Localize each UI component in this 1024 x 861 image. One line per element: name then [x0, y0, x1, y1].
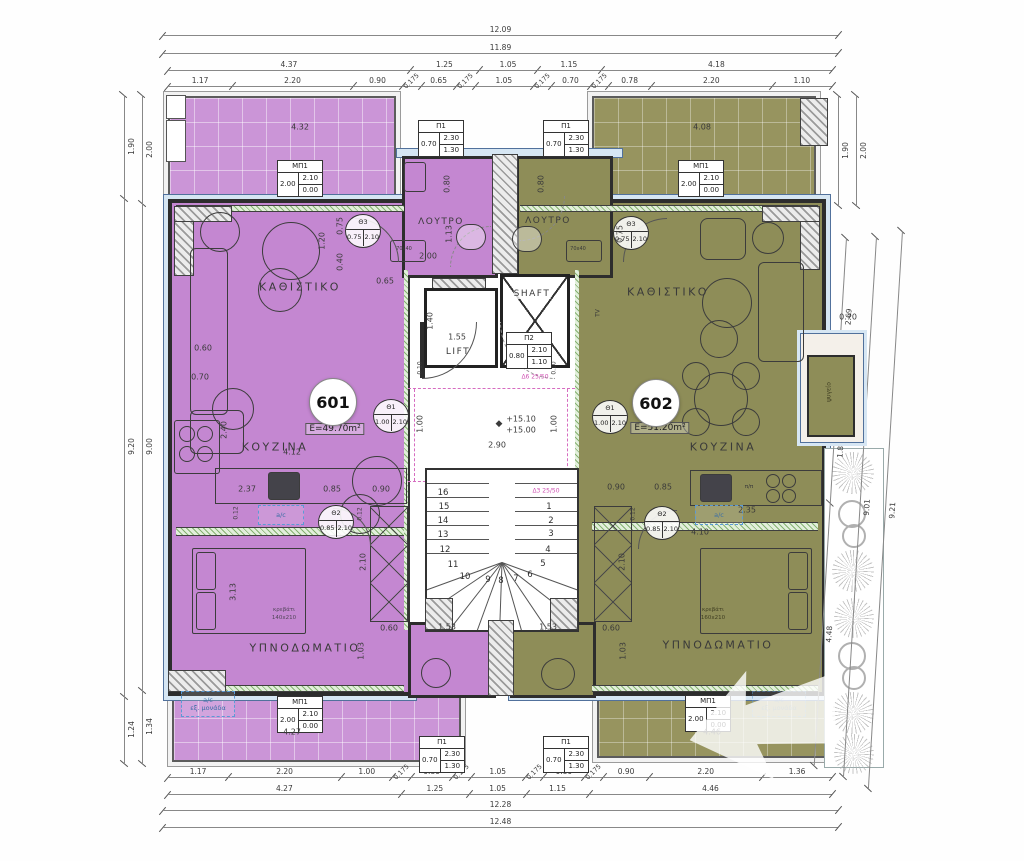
spec-width: 0.70: [544, 749, 565, 772]
plan-annotation: 0.12: [233, 506, 240, 519]
dimension-segment: 1.24: [124, 696, 138, 763]
dim-chain-top-4: 1.172.200.900.1750.650.1751.050.1750.700…: [168, 73, 832, 87]
dimension-segment: 1.17: [168, 764, 228, 778]
dim-chain-right-top-inner: 2.00: [856, 95, 870, 205]
plan-annotation: 1.03: [357, 642, 366, 660]
spec-title: ΜΠ1: [278, 697, 322, 709]
spec-width: 2.00: [278, 173, 299, 196]
dimension-segment: 9.00: [142, 203, 156, 690]
plan-annotation: 160x210: [701, 615, 725, 621]
post-top-left-2: [166, 120, 186, 162]
beam-line-1: [408, 388, 575, 389]
dimension-segment: 1.17: [168, 73, 232, 87]
toilet-602: [512, 226, 542, 252]
unit-number-602: 602: [639, 394, 672, 413]
plan-annotation: 2.40: [220, 421, 229, 439]
spec-height: 2.10: [700, 173, 723, 185]
spec-height: 2.10: [528, 345, 551, 357]
coffee-table-602-a: [702, 278, 752, 328]
kitchen-sink-602: [700, 474, 732, 502]
dimension-value: 4.37: [281, 60, 298, 69]
pillow-602-b: [788, 592, 808, 630]
plan-annotation: 1.53: [438, 623, 456, 632]
spec-sill: 1.30: [565, 761, 588, 772]
tag-title: Θ1: [593, 401, 627, 416]
bottom-room-601: [408, 622, 496, 698]
window-spec-P1-bottom-left: Π1 0.70 2.301.30: [419, 736, 465, 773]
plan-annotation: 0.60: [194, 344, 212, 353]
plan-annotation: 4.12: [283, 448, 301, 457]
dimension-segment: 2.20: [651, 73, 772, 87]
dimension-segment: 0.175: [590, 73, 609, 87]
plan-annotation: 4.32: [291, 123, 309, 132]
plan-annotation: TV: [595, 309, 602, 317]
wall-between-bathrooms: [492, 154, 518, 274]
dimension-segment: 1.15: [537, 57, 601, 71]
door-tag-TH2-601: Θ2 0.852.10: [318, 505, 354, 539]
dimension-value: 2.20: [703, 76, 720, 85]
plan-annotation: 0.10: [551, 361, 558, 374]
dimension-value: 9.01: [862, 498, 872, 515]
door-tag-TH1-602: Θ1 1.002.10: [592, 400, 628, 434]
spec-title: Π2: [507, 333, 551, 345]
plan-annotation: 4.08: [693, 123, 711, 132]
dimension-value: 1.25: [427, 784, 444, 793]
plan-annotation: 0.70: [191, 373, 209, 382]
dimension-value: 1.84: [836, 441, 846, 458]
balcony-chair-602: [541, 658, 575, 690]
dimension-segment: 2.00: [142, 95, 156, 203]
dimension-segment: 0.175: [392, 764, 411, 778]
plan-annotation: 4.10: [691, 528, 709, 537]
lift-label: LIFT: [446, 347, 470, 357]
window-spec-P1-bottom-right: Π1 0.70 2.301.30: [543, 736, 589, 773]
plan-annotation: Δ6 25/50: [521, 374, 548, 381]
dimension-value: 9.20: [127, 439, 136, 456]
plan-annotation: 140x210: [272, 615, 296, 621]
ac-ext-unit-601: a/c εξ. μονάδα: [181, 691, 235, 717]
armchair-602-sq: [700, 218, 746, 260]
stair-step-number: 3: [548, 529, 553, 539]
kitchen-sink-601: [268, 472, 300, 500]
shower-601: [404, 162, 426, 192]
level-mark-icon: ◆: [496, 419, 503, 429]
dimension-segment: 1.90: [838, 95, 852, 205]
dimension-value: 0.175: [392, 763, 411, 782]
ac-unit-602: a/c: [695, 505, 743, 525]
plan-annotation: 0.40: [336, 253, 345, 271]
level-upper: +15.10: [506, 415, 536, 424]
plan-annotation: 1.13: [445, 225, 454, 243]
stove-burner-601-3: [179, 446, 195, 462]
wall-between-bottom-rooms: [488, 620, 514, 696]
bath-label-602: ΛΟΥΤΡΟ: [525, 216, 571, 226]
stair-step-number: 11: [448, 560, 459, 570]
dimension-segment: 1.15: [526, 781, 589, 795]
dimension-segment: 2.20: [232, 73, 353, 87]
dimension-segment: 4.37: [168, 57, 410, 71]
plan-annotation: 0.12: [357, 507, 364, 520]
stove-burner-602-2: [782, 474, 796, 488]
plan-annotation: 1.03: [619, 642, 628, 660]
unit-badge-602: 602: [632, 379, 680, 427]
ac-unit-601: a/c: [258, 505, 304, 525]
beam-line-3: [414, 389, 415, 481]
dimension-value: 9.00: [145, 439, 154, 456]
stair-step-number: 9: [485, 575, 490, 585]
plan-annotation: 0.12: [630, 507, 637, 520]
plan-annotation: 1.40: [426, 312, 435, 330]
plan-annotation: 70x40: [570, 246, 586, 252]
dimension-segment: 2.00: [856, 95, 870, 205]
post-top-left-1: [166, 95, 186, 119]
living-label-602: ΚΑΘΙΣΤΙΚΟ: [627, 286, 709, 299]
dimension-segment: 1.05: [471, 764, 525, 778]
stair-step-number: 8: [498, 576, 503, 586]
plan-annotation: 0.80: [537, 175, 546, 193]
spec-sill: 1.30: [440, 145, 463, 156]
dimension-value: 0.175: [533, 72, 552, 91]
tag-title: Θ2: [645, 507, 679, 522]
stair-step-number: 16: [438, 488, 449, 498]
plan-annotation: 2.37: [238, 485, 256, 494]
plan-annotation: 2.35: [738, 506, 756, 515]
dimension-segment: 1.00: [341, 764, 392, 778]
stove-burner-601-4: [197, 446, 213, 462]
dimension-value: 1.05: [500, 60, 517, 69]
dimension-value: 0.175: [525, 763, 544, 782]
stair-step-number: 10: [460, 572, 471, 582]
dim-chain-left-outer: 1.909.201.24: [124, 95, 138, 763]
dimension-segment: 0.65: [421, 73, 457, 87]
plan-annotation: 0.90: [372, 485, 390, 494]
plan-annotation: 0.65: [376, 277, 394, 286]
stair-step-number: 6: [527, 570, 532, 580]
plan-annotation: 1.00: [416, 415, 425, 433]
plan-annotation: 0.75: [616, 225, 625, 243]
unit-number-601: 601: [316, 393, 349, 412]
dimension-value: 4.48: [824, 626, 834, 643]
door-tag-TH1-601: Θ1 1.002.10: [373, 399, 409, 433]
dimension-value: 4.27: [276, 784, 293, 793]
dining-chair-602-2: [732, 362, 760, 390]
plan-annotation: 2.00: [419, 252, 437, 261]
tag-title: Θ2: [319, 506, 353, 521]
sofa-602: [758, 262, 804, 362]
spec-width: 0.70: [419, 133, 440, 156]
spec-title: Π1: [544, 737, 588, 749]
dimension-value: 2.20: [284, 76, 301, 85]
plan-annotation: 3.13: [229, 583, 238, 601]
bedroom-label-601: ΥΠΝΟΔΩΜΑΤΙΟ: [250, 642, 361, 655]
stair-step-number: 4: [545, 545, 550, 555]
plan-annotation: 0.60: [602, 624, 620, 633]
dimension-segment: 1.34: [142, 690, 156, 763]
dimension-segment: 1.36: [762, 764, 832, 778]
dimension-value: 12.09: [490, 25, 511, 34]
stair-step-number: 15: [439, 502, 450, 512]
dimension-value: 12.28: [490, 800, 511, 809]
spec-sill: 0.00: [299, 185, 322, 196]
spec-width: 0.70: [544, 133, 565, 156]
wardrobe-601: [370, 506, 408, 622]
spec-height: 2.30: [441, 749, 464, 761]
dining-chair-602-4: [732, 408, 760, 436]
corner-wall-bottom-left: [168, 670, 226, 692]
dimension-value: 0.65: [430, 76, 447, 85]
dimension-value: 1.17: [192, 76, 209, 85]
coffee-table-602-b: [700, 320, 738, 358]
dimension-segment: 12.09: [163, 22, 838, 36]
dimension-value: 0.90: [618, 767, 635, 776]
unit-badge-601: 601: [309, 378, 357, 426]
spec-title: Π1: [544, 121, 588, 133]
spec-title: Π1: [419, 121, 463, 133]
plan-annotation: 1.55: [448, 333, 466, 342]
dimension-value: 11.89: [490, 43, 511, 52]
ac-label-602: a/c: [714, 511, 724, 519]
plan-annotation: 0.90: [607, 483, 625, 492]
dim-chain-bottom-3: 12.28: [163, 797, 838, 811]
dimension-value: 1.90: [841, 142, 850, 159]
dimension-value: 0.175: [456, 72, 475, 91]
dimension-segment: 0.90: [603, 764, 649, 778]
stove-burner-602-1: [766, 474, 780, 488]
dimension-value: 4.46: [702, 784, 719, 793]
dimension-segment: 0.175: [456, 73, 475, 87]
dimension-segment: 0.70: [551, 73, 589, 87]
door-spec-MP1-top-left: ΜΠ1 2.00 2.100.00: [277, 160, 323, 197]
dimension-segment: 1.05: [475, 73, 533, 87]
dim-chain-top-1: 12.09: [163, 22, 838, 36]
neighbor-wall-top-right: [800, 98, 828, 146]
toilet-601: [456, 224, 486, 250]
pillow-601-b: [196, 592, 216, 630]
dimension-value: 0.90: [369, 76, 386, 85]
dimension-segment: 0.175: [402, 73, 421, 87]
spec-width: 0.80: [507, 345, 528, 368]
spec-height: 2.10: [299, 709, 322, 721]
dimension-segment: 2.20: [649, 764, 762, 778]
dimension-segment: 0.175: [525, 764, 544, 778]
dimension-segment: 1.05: [479, 57, 537, 71]
dim-chain-bottom-2: 4.271.251.051.154.46: [168, 781, 832, 795]
dimension-value: 1.25: [436, 60, 453, 69]
plan-annotation: κρεβάτι: [273, 607, 295, 613]
dimension-value: 1.36: [789, 767, 806, 776]
dim-chain-top-2: 11.89: [163, 40, 838, 54]
ac-label-601: a/c: [276, 511, 286, 519]
spec-width: 0.70: [420, 749, 441, 772]
dimension-value: 9.21: [887, 501, 897, 518]
stove-burner-602-4: [782, 489, 796, 503]
shaft-label: SHAFT: [514, 289, 551, 299]
dimension-value: 2.20: [276, 767, 293, 776]
armchair-601-top: [200, 212, 240, 252]
ac-ext-line2-601: εξ. μονάδα: [190, 704, 226, 712]
plan-annotation: ψυγείο: [826, 382, 833, 402]
dimension-segment: 1.05: [469, 781, 526, 795]
kitchen-label-602: ΚΟΥΖΙΝΑ: [690, 441, 757, 454]
dimension-segment: 1.90: [124, 95, 138, 198]
stair-step-number: 14: [438, 516, 449, 526]
tag-title: Θ3: [346, 215, 380, 230]
dimension-value: 1.00: [358, 767, 375, 776]
dimension-segment: 4.46: [589, 781, 832, 795]
spec-sill: 0.00: [700, 185, 723, 196]
dimension-value: 0.175: [402, 72, 421, 91]
living-label-601: ΚΑΘΙΣΤΙΚΟ: [259, 281, 341, 294]
spec-sill: 1.10: [528, 357, 551, 368]
dimension-value: 12.48: [490, 817, 511, 826]
ac-ext-line1-601: a/c: [203, 696, 213, 704]
dimension-segment: 2.20: [228, 764, 341, 778]
dimension-value: 1.05: [489, 784, 506, 793]
spec-height: 2.30: [440, 133, 463, 145]
dimension-segment: 1.25: [401, 781, 469, 795]
plan-annotation: 2.10: [359, 553, 368, 571]
spec-sill: 0.00: [299, 721, 322, 732]
plan-annotation: 2.10: [618, 553, 627, 571]
pillow-601-a: [196, 552, 216, 590]
stair-step-number: 2: [548, 516, 553, 526]
plan-annotation: 4.27: [283, 728, 301, 737]
window-spec-P1-top-right: Π1 0.70 2.301.30: [543, 120, 589, 157]
balcony-chair-601: [421, 658, 451, 688]
dimension-value: 2.00: [145, 141, 154, 158]
dimension-segment: 4.27: [168, 781, 401, 795]
plan-annotation: π/π: [745, 484, 753, 490]
window-spec-P2-shaft: Π2 0.80 2.101.10: [506, 332, 552, 369]
plan-annotation: 70x40: [396, 246, 412, 252]
spec-height: 2.10: [299, 173, 322, 185]
plan-annotation: 0.85: [654, 483, 672, 492]
stove-burner-602-3: [766, 489, 780, 503]
dimension-value: 1.15: [549, 784, 566, 793]
bedroom-label-602: ΥΠΝΟΔΩΜΑΤΙΟ: [663, 639, 774, 652]
dimension-value: 1.05: [495, 76, 512, 85]
dimension-value: 1.05: [489, 767, 506, 776]
dimension-value: 1.17: [190, 767, 207, 776]
dimension-segment: 0.90: [353, 73, 402, 87]
stove-burner-601-1: [179, 426, 195, 442]
stair-step-number: 13: [438, 530, 449, 540]
dimension-value: 1.34: [145, 718, 154, 735]
dimension-segment: 1.10: [772, 73, 832, 87]
plan-annotation: 0.60: [380, 624, 398, 633]
door-spec-MP1-top-right: ΜΠ1 2.00 2.100.00: [678, 160, 724, 197]
dining-chair-602-1: [682, 362, 710, 390]
spec-width: 2.00: [679, 173, 700, 196]
stair-step-number: 1: [546, 502, 551, 512]
plan-annotation: Δ3 25/50: [532, 488, 559, 495]
pillow-602-a: [788, 552, 808, 590]
dimension-value: 0.78: [621, 76, 638, 85]
dimension-segment: 4.18: [601, 57, 832, 71]
floor-plan-canvas: 12.09 11.89 4.371.251.051.154.18 1.172.2…: [0, 0, 1024, 861]
tag-title: Θ1: [374, 400, 408, 415]
dimension-segment: 12.48: [163, 814, 838, 828]
dimension-segment: 11.89: [163, 40, 838, 54]
dimension-value: 1.24: [127, 721, 136, 738]
dimension-value: 1.15: [561, 60, 578, 69]
dim-chain-bottom-1: 1.172.201.000.1750.800.1751.050.1750.800…: [168, 764, 832, 778]
dimension-value: 1.10: [793, 76, 810, 85]
door-tag-TH2-602: Θ2 0.852.10: [644, 506, 680, 540]
door-tag-TH3-601: Θ3 0.752.10: [345, 214, 381, 248]
dim-chain-top-3: 4.371.251.051.154.18: [168, 57, 832, 71]
stair-step-number: 7: [513, 574, 518, 584]
dimension-value: 0.70: [562, 76, 579, 85]
spec-title: ΜΠ1: [679, 161, 723, 173]
plan-annotation: 1.00: [550, 415, 559, 433]
spec-height: 2.30: [565, 749, 588, 761]
dimension-value: 1.90: [127, 138, 136, 155]
level-lower: +15.00: [506, 426, 536, 435]
dim-chain-right-top-outer: 1.90: [838, 95, 852, 205]
plan-annotation: 0.75: [336, 217, 345, 235]
spec-title: ΜΠ1: [278, 161, 322, 173]
stair-step-number: 5: [540, 559, 545, 569]
spec-title: Π1: [420, 737, 464, 749]
armchair-602-round: [752, 222, 784, 254]
dimension-segment: 0.175: [533, 73, 552, 87]
plan-annotation: 2.90: [488, 441, 506, 450]
window-spec-P1-top-left: Π1 0.70 2.301.30: [418, 120, 464, 157]
dimension-segment: 1.25: [410, 57, 479, 71]
plan-annotation: 0.70: [839, 313, 857, 322]
dimension-value: 4.18: [708, 60, 725, 69]
dimension-value: 2.20: [697, 767, 714, 776]
stove-burner-601-2: [197, 426, 213, 442]
bath-label-601: ΛΟΥΤΡΟ: [418, 217, 464, 227]
dimension-segment: 0.78: [608, 73, 651, 87]
dim-chain-left-inner: 2.009.001.34: [142, 95, 156, 763]
plan-annotation: κρεβάτι: [702, 607, 724, 613]
plan-annotation: 1.20: [318, 232, 327, 250]
dimension-value: 0.175: [590, 72, 609, 91]
stair-step-number: 12: [440, 545, 451, 555]
plan-annotation: 0.80: [443, 175, 452, 193]
dim-chain-bottom-4: 12.48: [163, 814, 838, 828]
corner-wall-602-top: [762, 206, 820, 222]
plan-annotation: 0.85: [323, 485, 341, 494]
spec-sill: 1.30: [441, 761, 464, 772]
spec-sill: 1.30: [565, 145, 588, 156]
dimension-segment: 12.28: [163, 797, 838, 811]
spec-height: 2.30: [565, 133, 588, 145]
dimension-value: 2.00: [859, 142, 868, 159]
dimension-segment: 9.20: [124, 198, 138, 696]
plan-annotation: 1.53: [539, 623, 557, 632]
plan-annotation: 0.10: [417, 361, 424, 374]
